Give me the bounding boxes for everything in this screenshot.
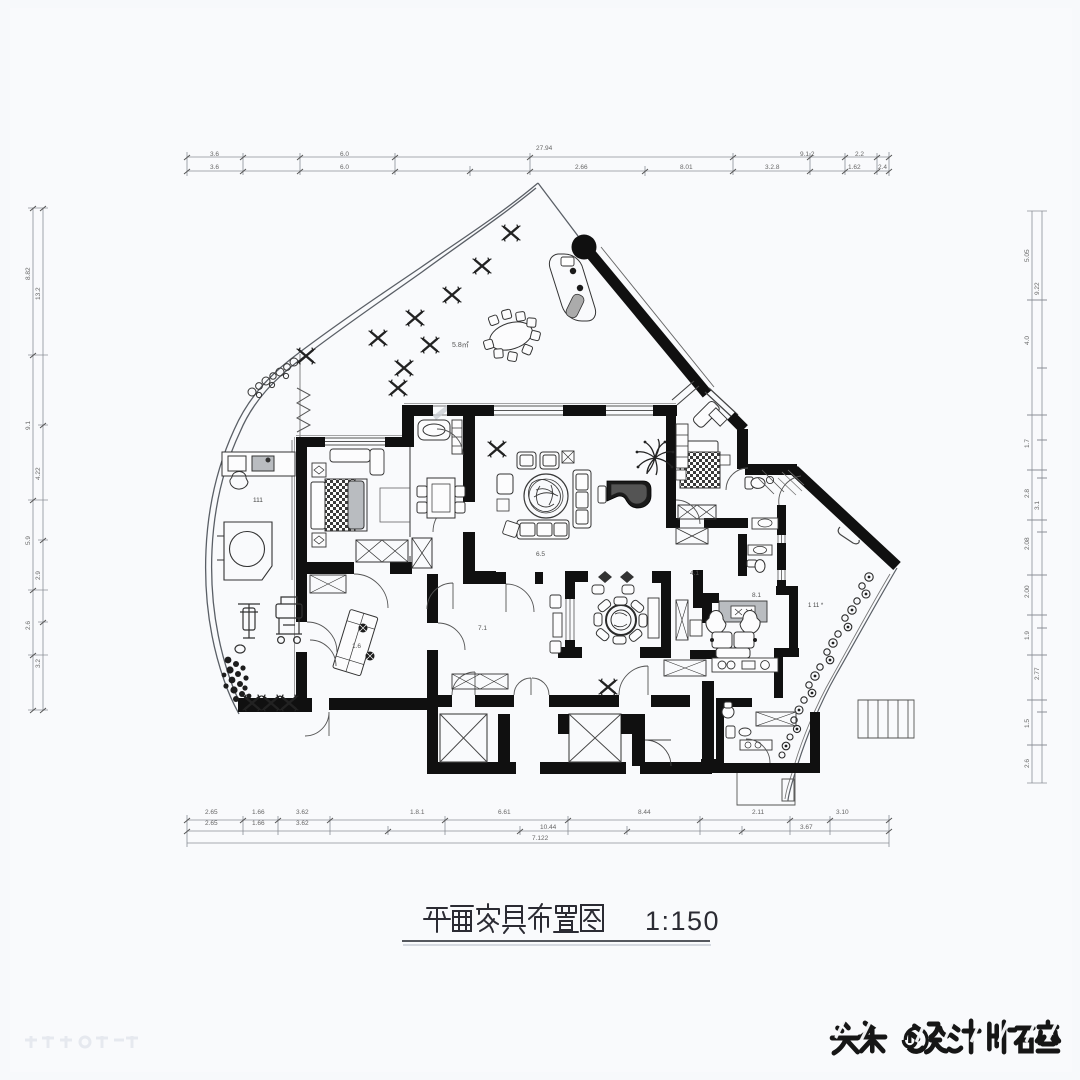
svg-text:2.65: 2.65 <box>205 820 218 827</box>
svg-text:27.94: 27.94 <box>536 145 553 152</box>
svg-text:6.0: 6.0 <box>340 164 349 171</box>
svg-text:5.8㎡: 5.8㎡ <box>452 341 469 349</box>
svg-text:5.9: 5.9 <box>25 536 32 545</box>
svg-text:1.66: 1.66 <box>252 820 265 827</box>
svg-text:1.5: 1.5 <box>1024 719 1031 728</box>
svg-text:6.61: 6.61 <box>498 809 511 816</box>
svg-text:1.9: 1.9 <box>1024 631 1031 640</box>
svg-text:6.5: 6.5 <box>536 551 545 558</box>
svg-text:3.2.8: 3.2.8 <box>765 164 780 171</box>
svg-text:2.08: 2.08 <box>1024 537 1031 550</box>
svg-text:2.77: 2.77 <box>1034 667 1041 680</box>
svg-text:3.62: 3.62 <box>296 809 309 816</box>
svg-text:10.44: 10.44 <box>540 824 557 831</box>
svg-text:2.2: 2.2 <box>855 151 864 158</box>
svg-text:1:150: 1:150 <box>645 906 720 936</box>
svg-text:2.4: 2.4 <box>878 164 887 171</box>
svg-text:9.1.2: 9.1.2 <box>800 151 815 158</box>
svg-text:8.82: 8.82 <box>25 267 32 280</box>
svg-text:3.2: 3.2 <box>35 659 42 668</box>
svg-text:8.1: 8.1 <box>752 592 761 599</box>
svg-text:8.44: 8.44 <box>638 809 651 816</box>
svg-text:2.8: 2.8 <box>1024 489 1031 498</box>
svg-text:6.0: 6.0 <box>340 151 349 158</box>
svg-text:1.66: 1.66 <box>252 809 265 816</box>
svg-text:5.05: 5.05 <box>1024 249 1031 262</box>
svg-text:7.122: 7.122 <box>532 835 549 842</box>
svg-text:9.1: 9.1 <box>25 421 32 430</box>
svg-text:13.2: 13.2 <box>35 287 42 300</box>
svg-text:2.66: 2.66 <box>575 164 588 171</box>
svg-text:2.65: 2.65 <box>205 809 218 816</box>
svg-text:111: 111 <box>253 497 263 504</box>
svg-text:1.6: 1.6 <box>352 643 361 650</box>
svg-text:2.9: 2.9 <box>35 571 42 580</box>
svg-text:1 11 *: 1 11 * <box>808 603 824 609</box>
svg-text:4.22: 4.22 <box>35 467 42 480</box>
svg-text:2.6: 2.6 <box>25 621 32 630</box>
svg-text:1.62: 1.62 <box>848 164 861 171</box>
svg-text:2.11: 2.11 <box>752 809 765 816</box>
svg-text:3.6: 3.6 <box>210 151 219 158</box>
svg-text:3.10: 3.10 <box>836 809 849 816</box>
svg-text:1.8.1: 1.8.1 <box>410 809 425 816</box>
svg-text:3.67: 3.67 <box>800 824 813 831</box>
svg-text:2.00: 2.00 <box>1024 585 1031 598</box>
svg-text:3.6: 3.6 <box>210 164 219 171</box>
svg-text:4.0: 4.0 <box>1024 336 1031 345</box>
svg-text:7.1: 7.1 <box>478 625 487 632</box>
svg-text:3.62: 3.62 <box>296 820 309 827</box>
svg-text:3.1: 3.1 <box>1034 501 1041 510</box>
svg-text:8.01: 8.01 <box>680 164 693 171</box>
svg-text:1.7: 1.7 <box>1024 439 1031 448</box>
svg-text:2.6: 2.6 <box>1024 759 1031 768</box>
svg-text:9.22: 9.22 <box>1034 282 1041 295</box>
svg-text:4.1: 4.1 <box>690 570 699 577</box>
